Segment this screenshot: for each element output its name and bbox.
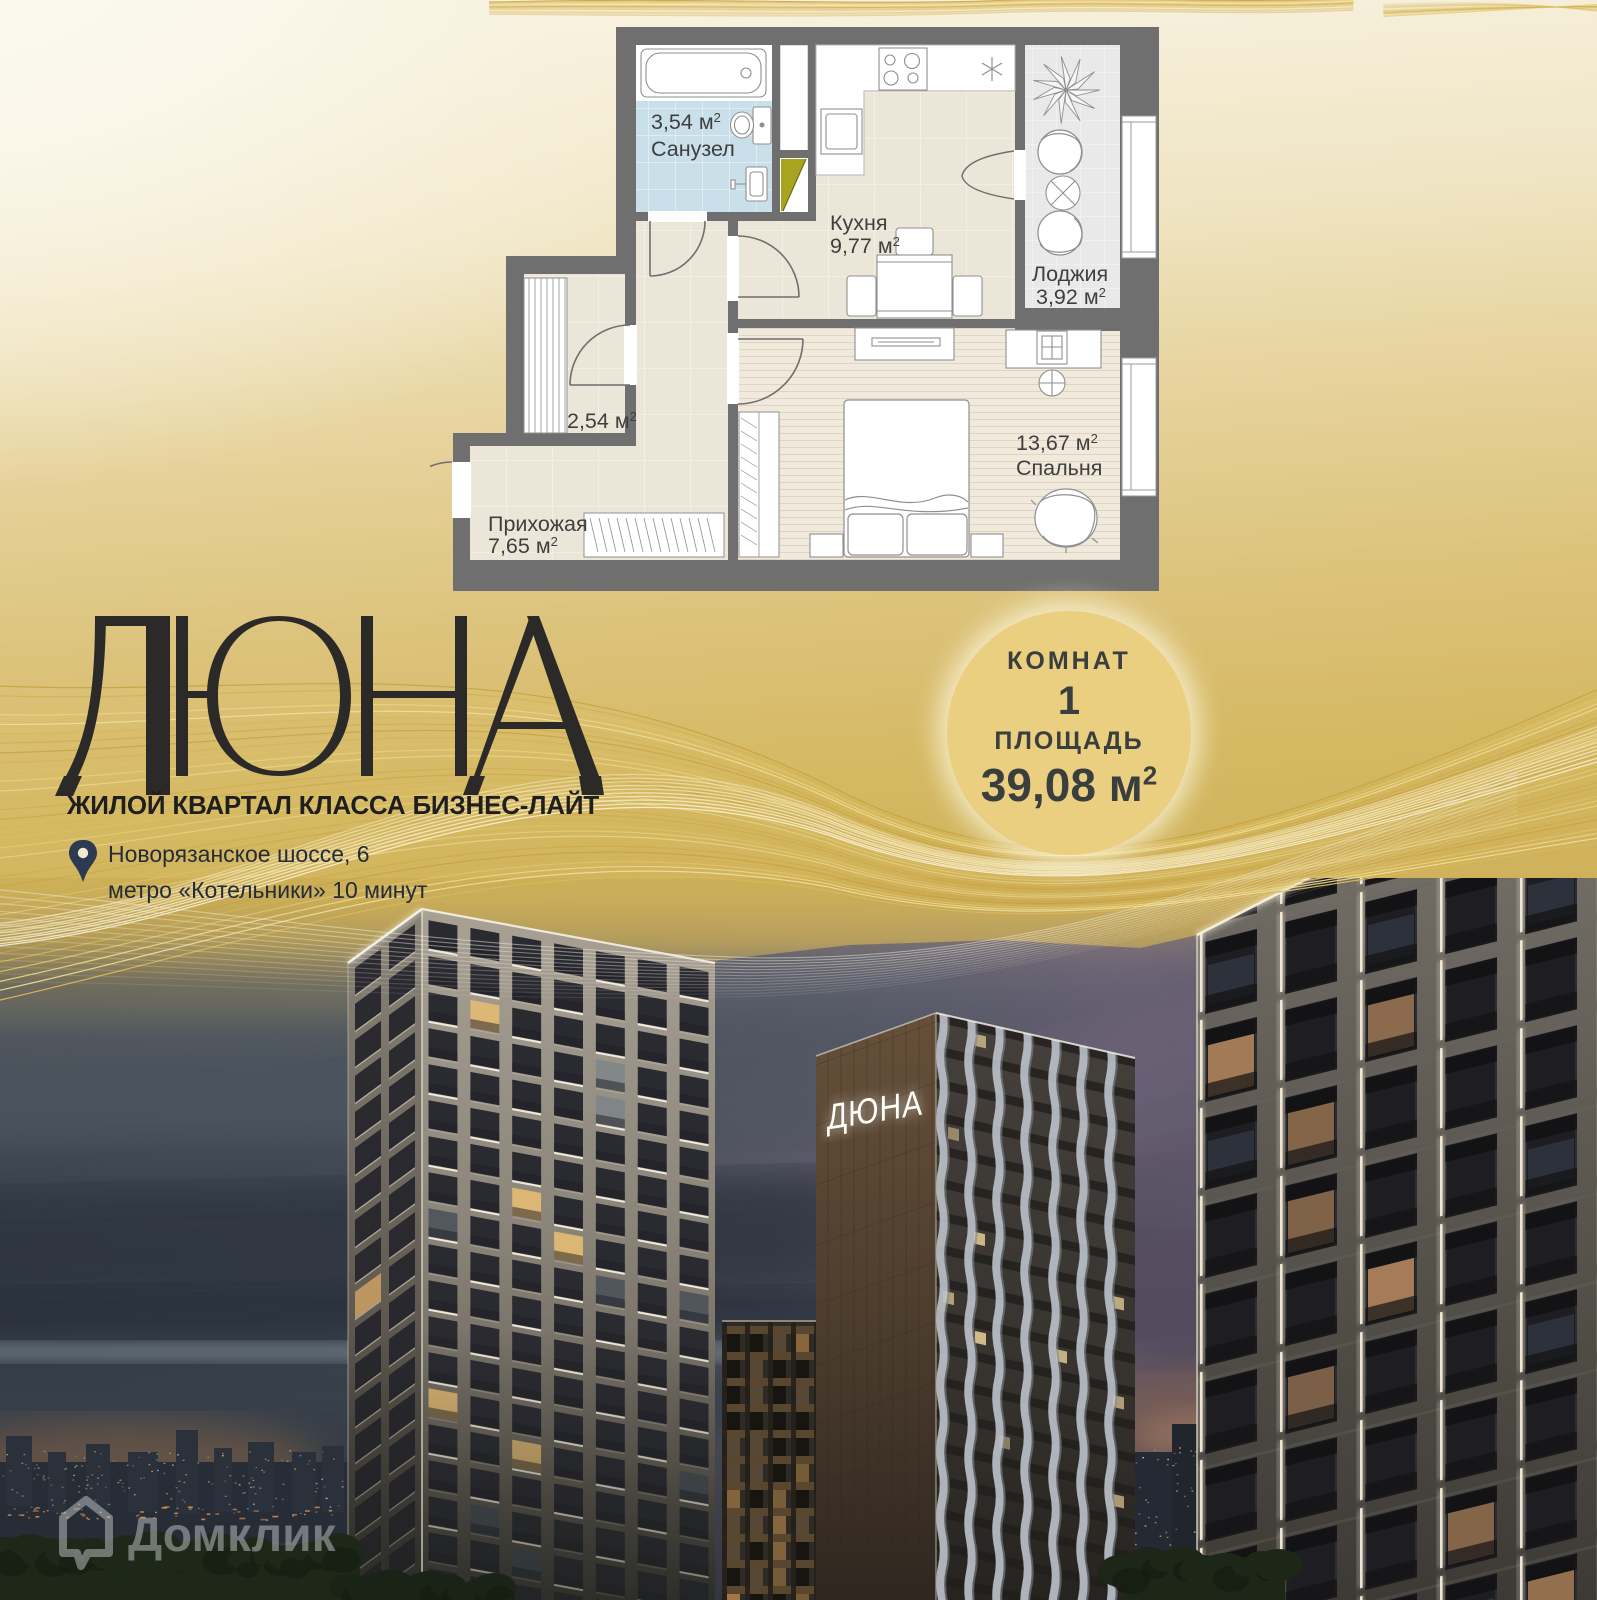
svg-text:3,92 м2: 3,92 м2: [1036, 285, 1106, 309]
svg-text:2,54 м2: 2,54 м2: [567, 409, 637, 433]
svg-text:3,54 м2: 3,54 м2: [651, 110, 721, 134]
svg-text:Санузел: Санузел: [651, 137, 735, 161]
svg-text:Кухня: Кухня: [830, 211, 888, 235]
svg-text:Спальня: Спальня: [1016, 456, 1102, 480]
svg-text:Прихожая: Прихожая: [488, 512, 588, 536]
svg-text:7,65 м2: 7,65 м2: [488, 534, 558, 558]
svg-text:9,77 м2: 9,77 м2: [830, 234, 900, 258]
svg-text:13,67 м2: 13,67 м2: [1016, 431, 1098, 455]
svg-text:Лоджия: Лоджия: [1032, 262, 1108, 286]
